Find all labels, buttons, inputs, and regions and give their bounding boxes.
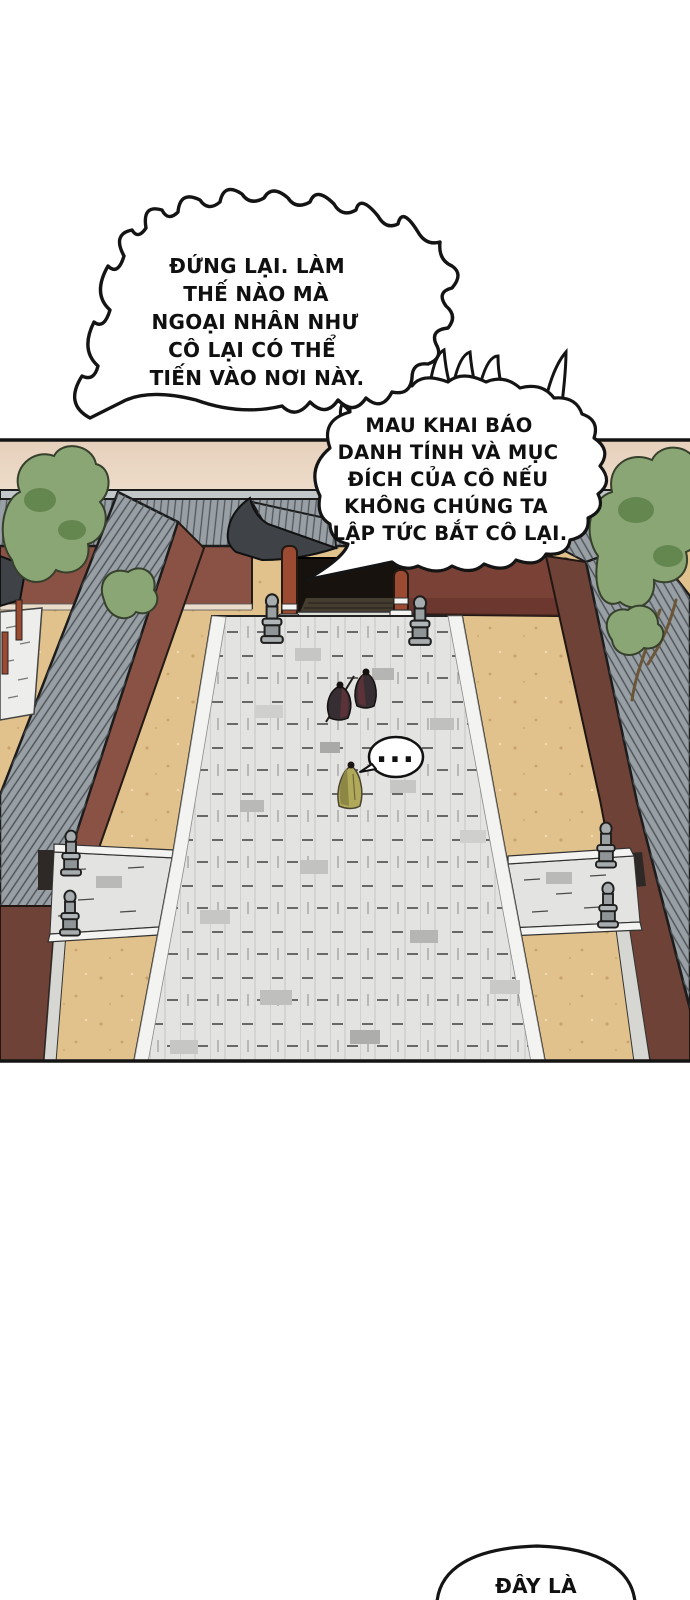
svg-text:TIẾN VÀO NƠI NÀY.: TIẾN VÀO NƠI NÀY. [150, 364, 365, 390]
svg-text:LẬP TỨC BẮT CÔ LẠI.: LẬP TỨC BẮT CÔ LẠI. [333, 519, 568, 545]
svg-text:THẾ NÀO MÀ: THẾ NÀO MÀ [183, 280, 329, 306]
demand-text: MAU KHAI BÁO DANH TÍNH VÀ MỤC ĐÍCH CỦA C… [333, 414, 568, 545]
gate-pillar-right [394, 570, 408, 614]
speech-bubble-bottom-partial: ĐÂY LÀ [437, 1546, 635, 1600]
svg-text:ĐÍCH CỦA CÔ NẾU: ĐÍCH CỦA CÔ NẾU [348, 465, 549, 491]
svg-text:KHÔNG CHÚNG TA: KHÔNG CHÚNG TA [344, 494, 548, 518]
comic-page: ... MAU KHAI BÁO DANH TÍNH VÀ MỤC ĐÍCH C… [0, 0, 690, 1600]
svg-text:MAU KHAI BÁO: MAU KHAI BÁO [365, 414, 532, 437]
halt-text: ĐỨNG LẠI. LÀM THẾ NÀO MÀ NGOẠI NHÂN NHƯ … [150, 254, 365, 390]
bottom-partial-text: ĐÂY LÀ [495, 1574, 577, 1598]
veranda-post [2, 632, 8, 674]
speech-bubble-halt: ĐỨNG LẠI. LÀM THẾ NÀO MÀ NGOẠI NHÂN NHƯ … [75, 190, 458, 419]
svg-text:DANH TÍNH VÀ MỤC: DANH TÍNH VÀ MỤC [338, 441, 559, 464]
silence-text: ... [376, 735, 416, 770]
svg-text:ĐỨNG LẠI. LÀM: ĐỨNG LẠI. LÀM [169, 254, 345, 278]
veranda-post [16, 600, 22, 640]
svg-text:CÔ LẠI CÓ THỂ: CÔ LẠI CÓ THỂ [168, 336, 336, 362]
svg-text:NGOẠI NHÂN NHƯ: NGOẠI NHÂN NHƯ [151, 310, 358, 334]
gate-floor [300, 598, 402, 612]
